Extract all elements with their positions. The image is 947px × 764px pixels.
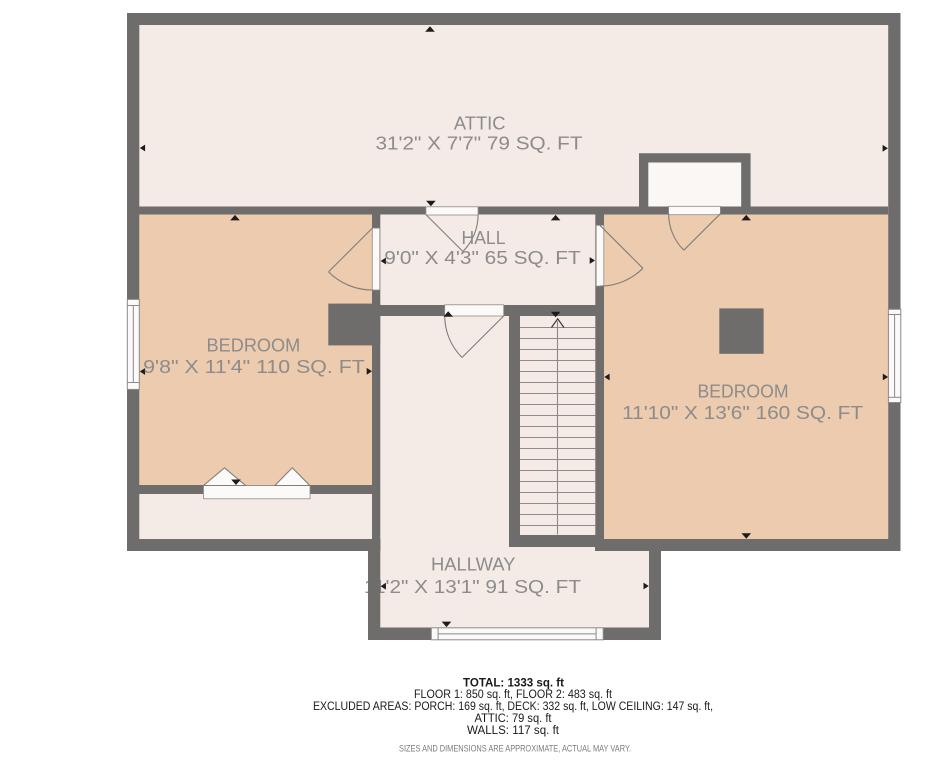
svg-text:BEDROOM: BEDROOM xyxy=(207,335,301,356)
svg-text:11'2" X 13'1" 91 SQ. FT: 11'2" X 13'1" 91 SQ. FT xyxy=(364,576,581,597)
svg-text:HALLWAY: HALLWAY xyxy=(431,554,516,575)
svg-text:11'10" X 13'6" 160 SQ. FT: 11'10" X 13'6" 160 SQ. FT xyxy=(622,402,863,423)
svg-text:9'8" X 11'4" 110 SQ. FT: 9'8" X 11'4" 110 SQ. FT xyxy=(143,356,365,377)
svg-text:WALLS: 117 sq. ft: WALLS: 117 sq. ft xyxy=(467,723,560,737)
svg-text:SIZES AND DIMENSIONS ARE APPRO: SIZES AND DIMENSIONS ARE APPROXIMATE, AC… xyxy=(399,744,631,755)
svg-text:9'0" X 4'3" 65 SQ. FT: 9'0" X 4'3" 65 SQ. FT xyxy=(384,247,581,268)
svg-text:HALL: HALL xyxy=(462,227,506,248)
svg-text:31'2" X 7'7" 79 SQ. FT: 31'2" X 7'7" 79 SQ. FT xyxy=(376,132,583,153)
svg-text:BEDROOM: BEDROOM xyxy=(698,381,789,402)
svg-text:ATTIC: ATTIC xyxy=(454,113,506,134)
